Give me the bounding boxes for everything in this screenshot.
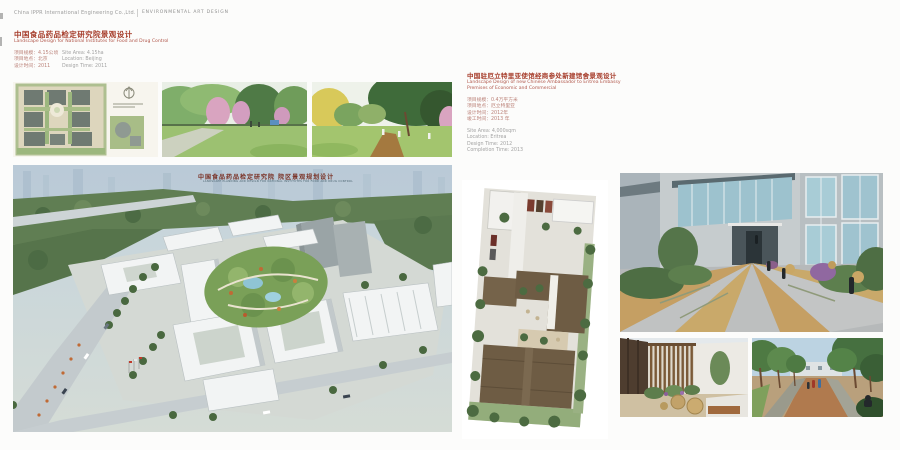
right-project-title-en-1: Landscape Design of new Chinese Ambassad… (467, 80, 621, 85)
header-divider: | (136, 8, 139, 17)
right-courtyard-rendering (620, 173, 883, 332)
right-project-title-en-2: Premises of Economic and Commercial (467, 86, 556, 91)
detail-row: Design Time: 2011 (62, 64, 107, 70)
header-company-name: China IPPR International Engineering Co.… (14, 10, 136, 16)
detail-row: 竣工时间：2013 年 (467, 117, 518, 123)
right-allee-photo (752, 338, 883, 417)
detail-row: Completion Time: 2013 (467, 148, 523, 154)
detail-row: Location: Beijing (62, 57, 107, 63)
left-park-photo-1 (162, 82, 307, 157)
left-project-details-zh: 项目规模：4.15公顷 项目地点：北京 设计时间：2011 (14, 51, 58, 70)
left-siteplan-image (13, 82, 158, 157)
left-aerial-rendering (13, 165, 452, 432)
right-slatscreen-photo (620, 338, 748, 417)
right-project-details-en: Site Area: 4,000sqm Location: Eritrea De… (467, 129, 523, 155)
detail-row: 设计时间：2011 (14, 64, 58, 70)
portfolio-spread: China IPPR International Engineering Co.… (0, 0, 900, 450)
left-project-details-en: Site Area: 4.15ha Location: Beijing Desi… (62, 51, 107, 70)
aerial-caption-en: LANDSCAPE PLANNING AND DESIGN FOR NATION… (203, 180, 353, 183)
scan-artifact (0, 13, 3, 19)
climbing-plant (710, 351, 730, 385)
header-section-title: ENVIRONMENTAL ART DESIGN (142, 10, 229, 15)
left-project-title-en: Landscape Design for National Institutes… (14, 39, 168, 44)
detail-row: 项目地点：厄立特里亚 (467, 104, 518, 110)
glass-band (678, 177, 792, 227)
right-project-details-zh: 项目规模：0.4万平方米 项目地点：厄立特里亚 设计时间：2012年 竣工时间：… (467, 98, 518, 124)
right-project-title-zh: 中国驻厄立特里亚使馆经商参处新建馆舍景观设计 (467, 70, 617, 80)
right-siteplan-image (462, 180, 608, 439)
left-park-photo-2 (312, 82, 452, 157)
scan-artifact (0, 37, 2, 46)
